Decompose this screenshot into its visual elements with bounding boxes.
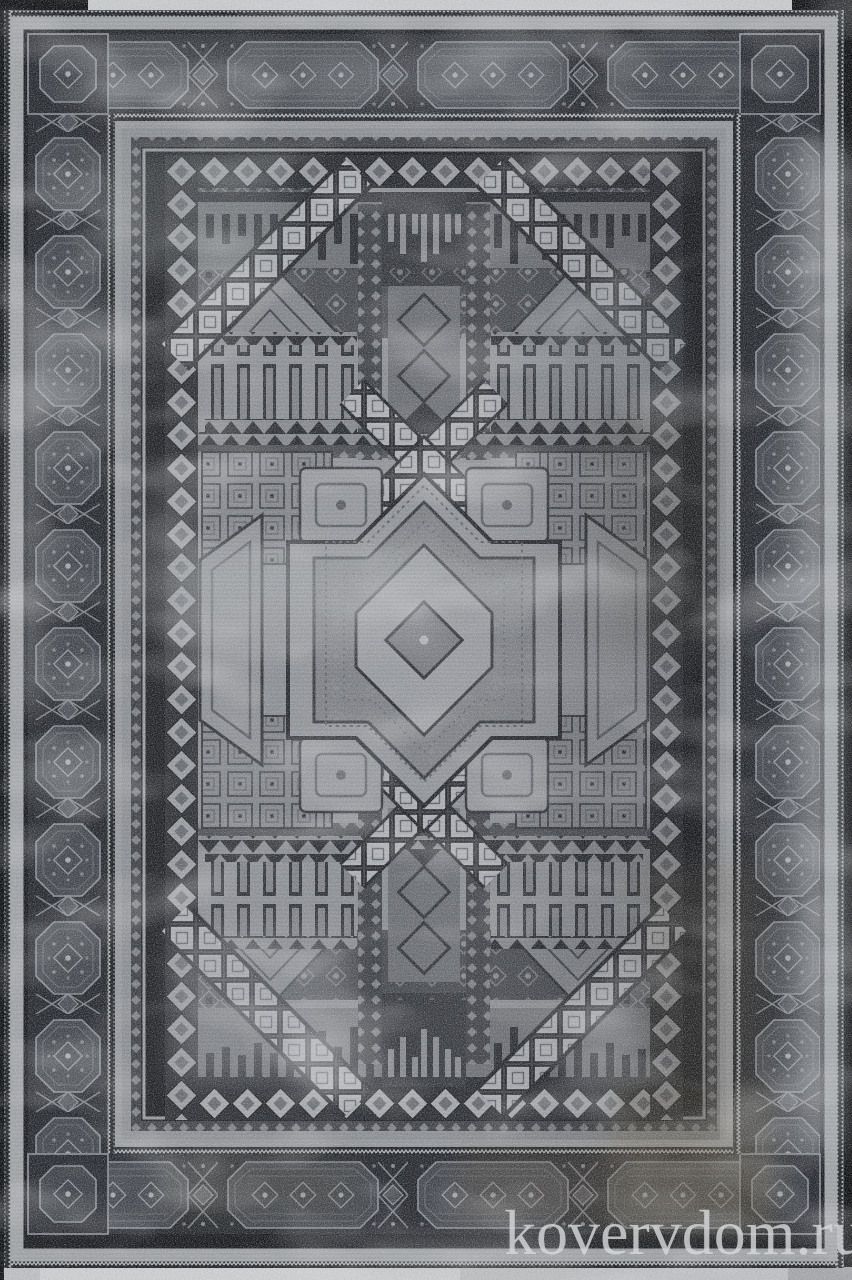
svg-text:kovervdom.ru: kovervdom.ru	[504, 1197, 852, 1268]
